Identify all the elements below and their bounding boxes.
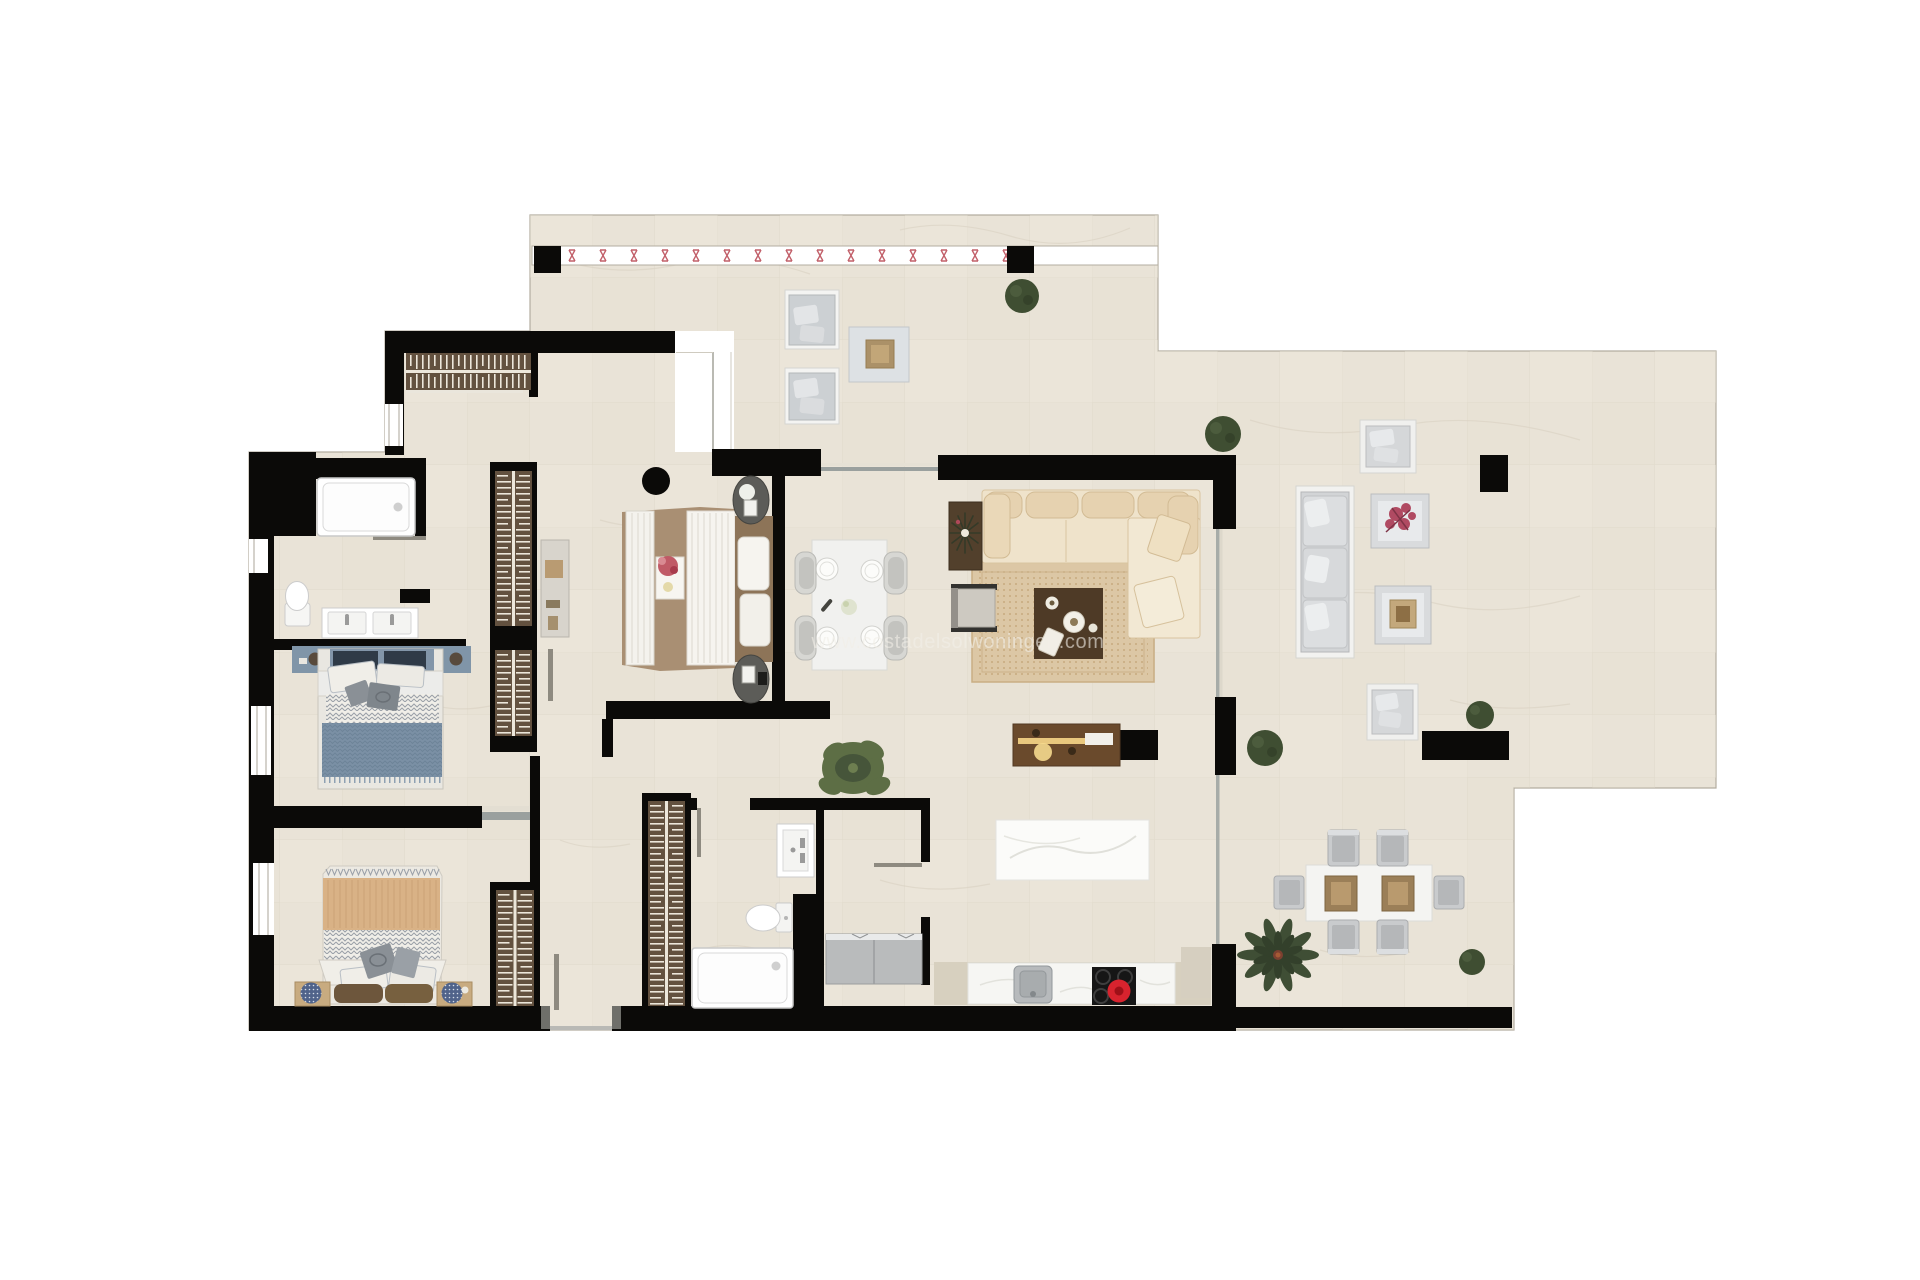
svg-text:www.costadelsolwoningen.com: www.costadelsolwoningen.com [810,631,1104,653]
